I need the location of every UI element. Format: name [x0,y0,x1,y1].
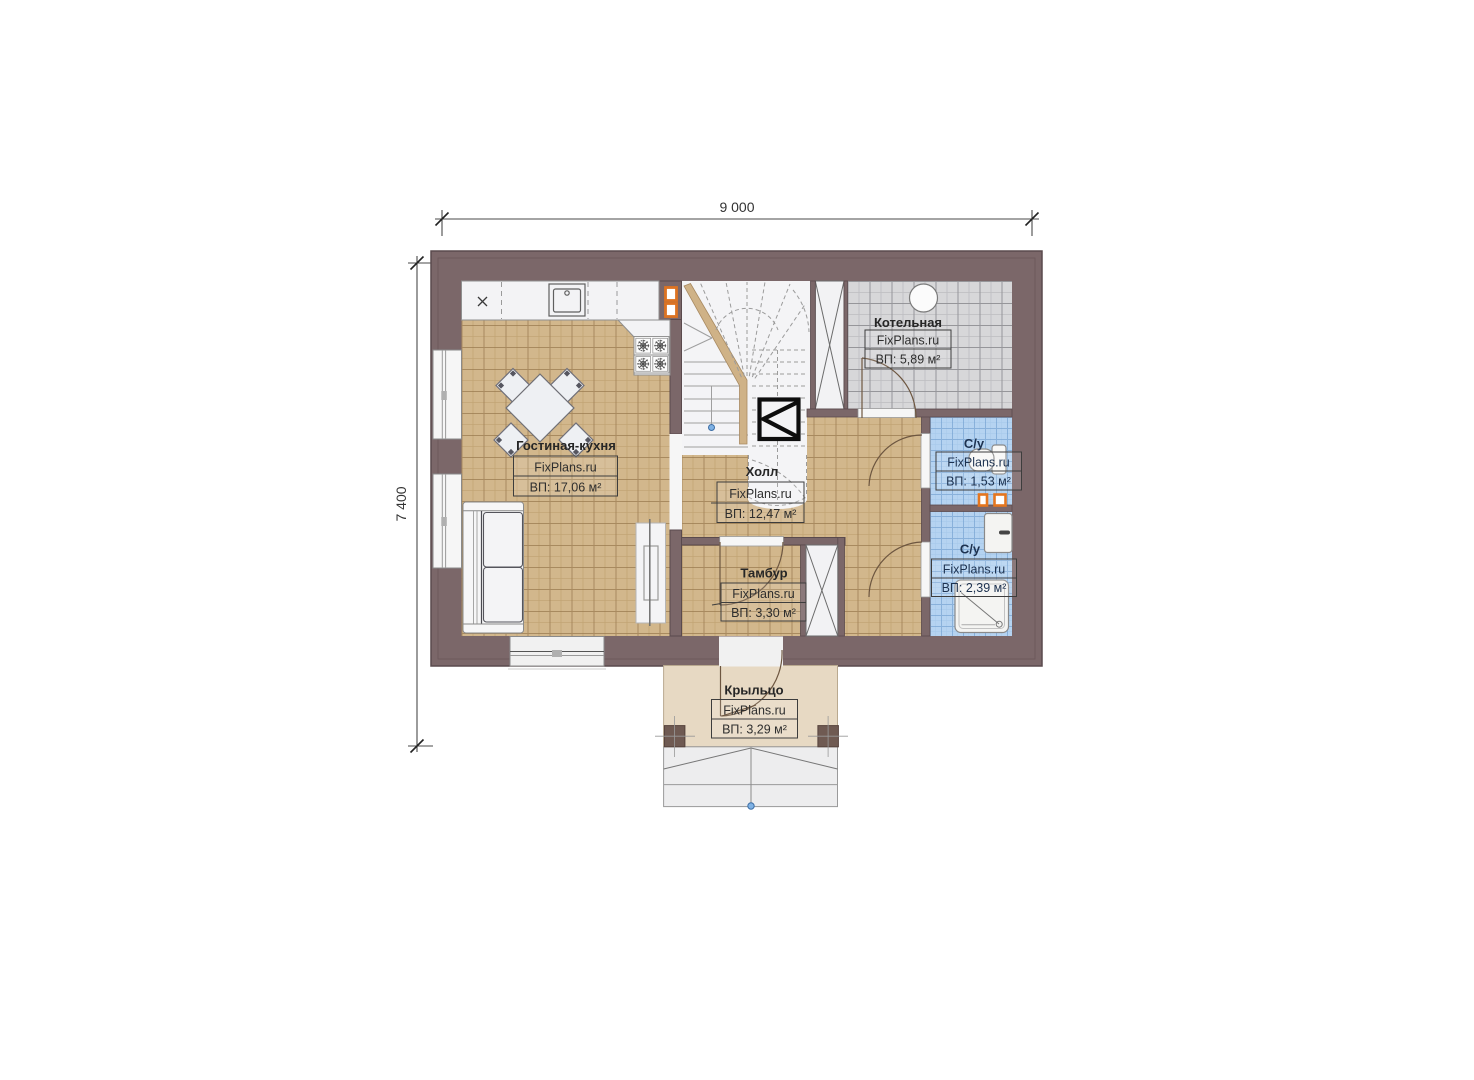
svg-text:FixPlans.ru: FixPlans.ru [732,587,795,601]
svg-text:ВП: 12,47 м²: ВП: 12,47 м² [725,507,797,521]
svg-text:FixPlans.ru: FixPlans.ru [943,563,1006,577]
svg-text:9 000: 9 000 [719,199,754,215]
svg-text:FixPlans.ru: FixPlans.ru [729,487,792,501]
svg-text:Холл: Холл [746,464,779,479]
svg-text:Крыльцо: Крыльцо [724,683,783,698]
svg-text:FixPlans.ru: FixPlans.ru [877,334,940,348]
svg-text:FixPlans.ru: FixPlans.ru [947,456,1010,470]
svg-text:7 400: 7 400 [393,486,409,521]
svg-text:Гостиная-кухня: Гостиная-кухня [516,438,616,453]
svg-text:ВП: 3,29 м²: ВП: 3,29 м² [722,723,787,737]
svg-text:ВП: 17,06 м²: ВП: 17,06 м² [530,481,602,495]
svg-text:ВП: 2,39 м²: ВП: 2,39 м² [942,581,1007,595]
svg-text:ВП: 3,30 м²: ВП: 3,30 м² [731,606,796,620]
svg-text:Котельная: Котельная [874,315,942,330]
svg-text:FixPlans.ru: FixPlans.ru [723,704,786,718]
svg-text:С/у: С/у [964,436,985,451]
svg-text:С/у: С/у [960,542,981,557]
svg-text:Тамбур: Тамбур [740,566,787,581]
svg-text:ВП: 1,53 м²: ВП: 1,53 м² [946,475,1011,489]
svg-text:ВП: 5,89 м²: ВП: 5,89 м² [876,353,941,367]
svg-text:FixPlans.ru: FixPlans.ru [534,461,597,475]
